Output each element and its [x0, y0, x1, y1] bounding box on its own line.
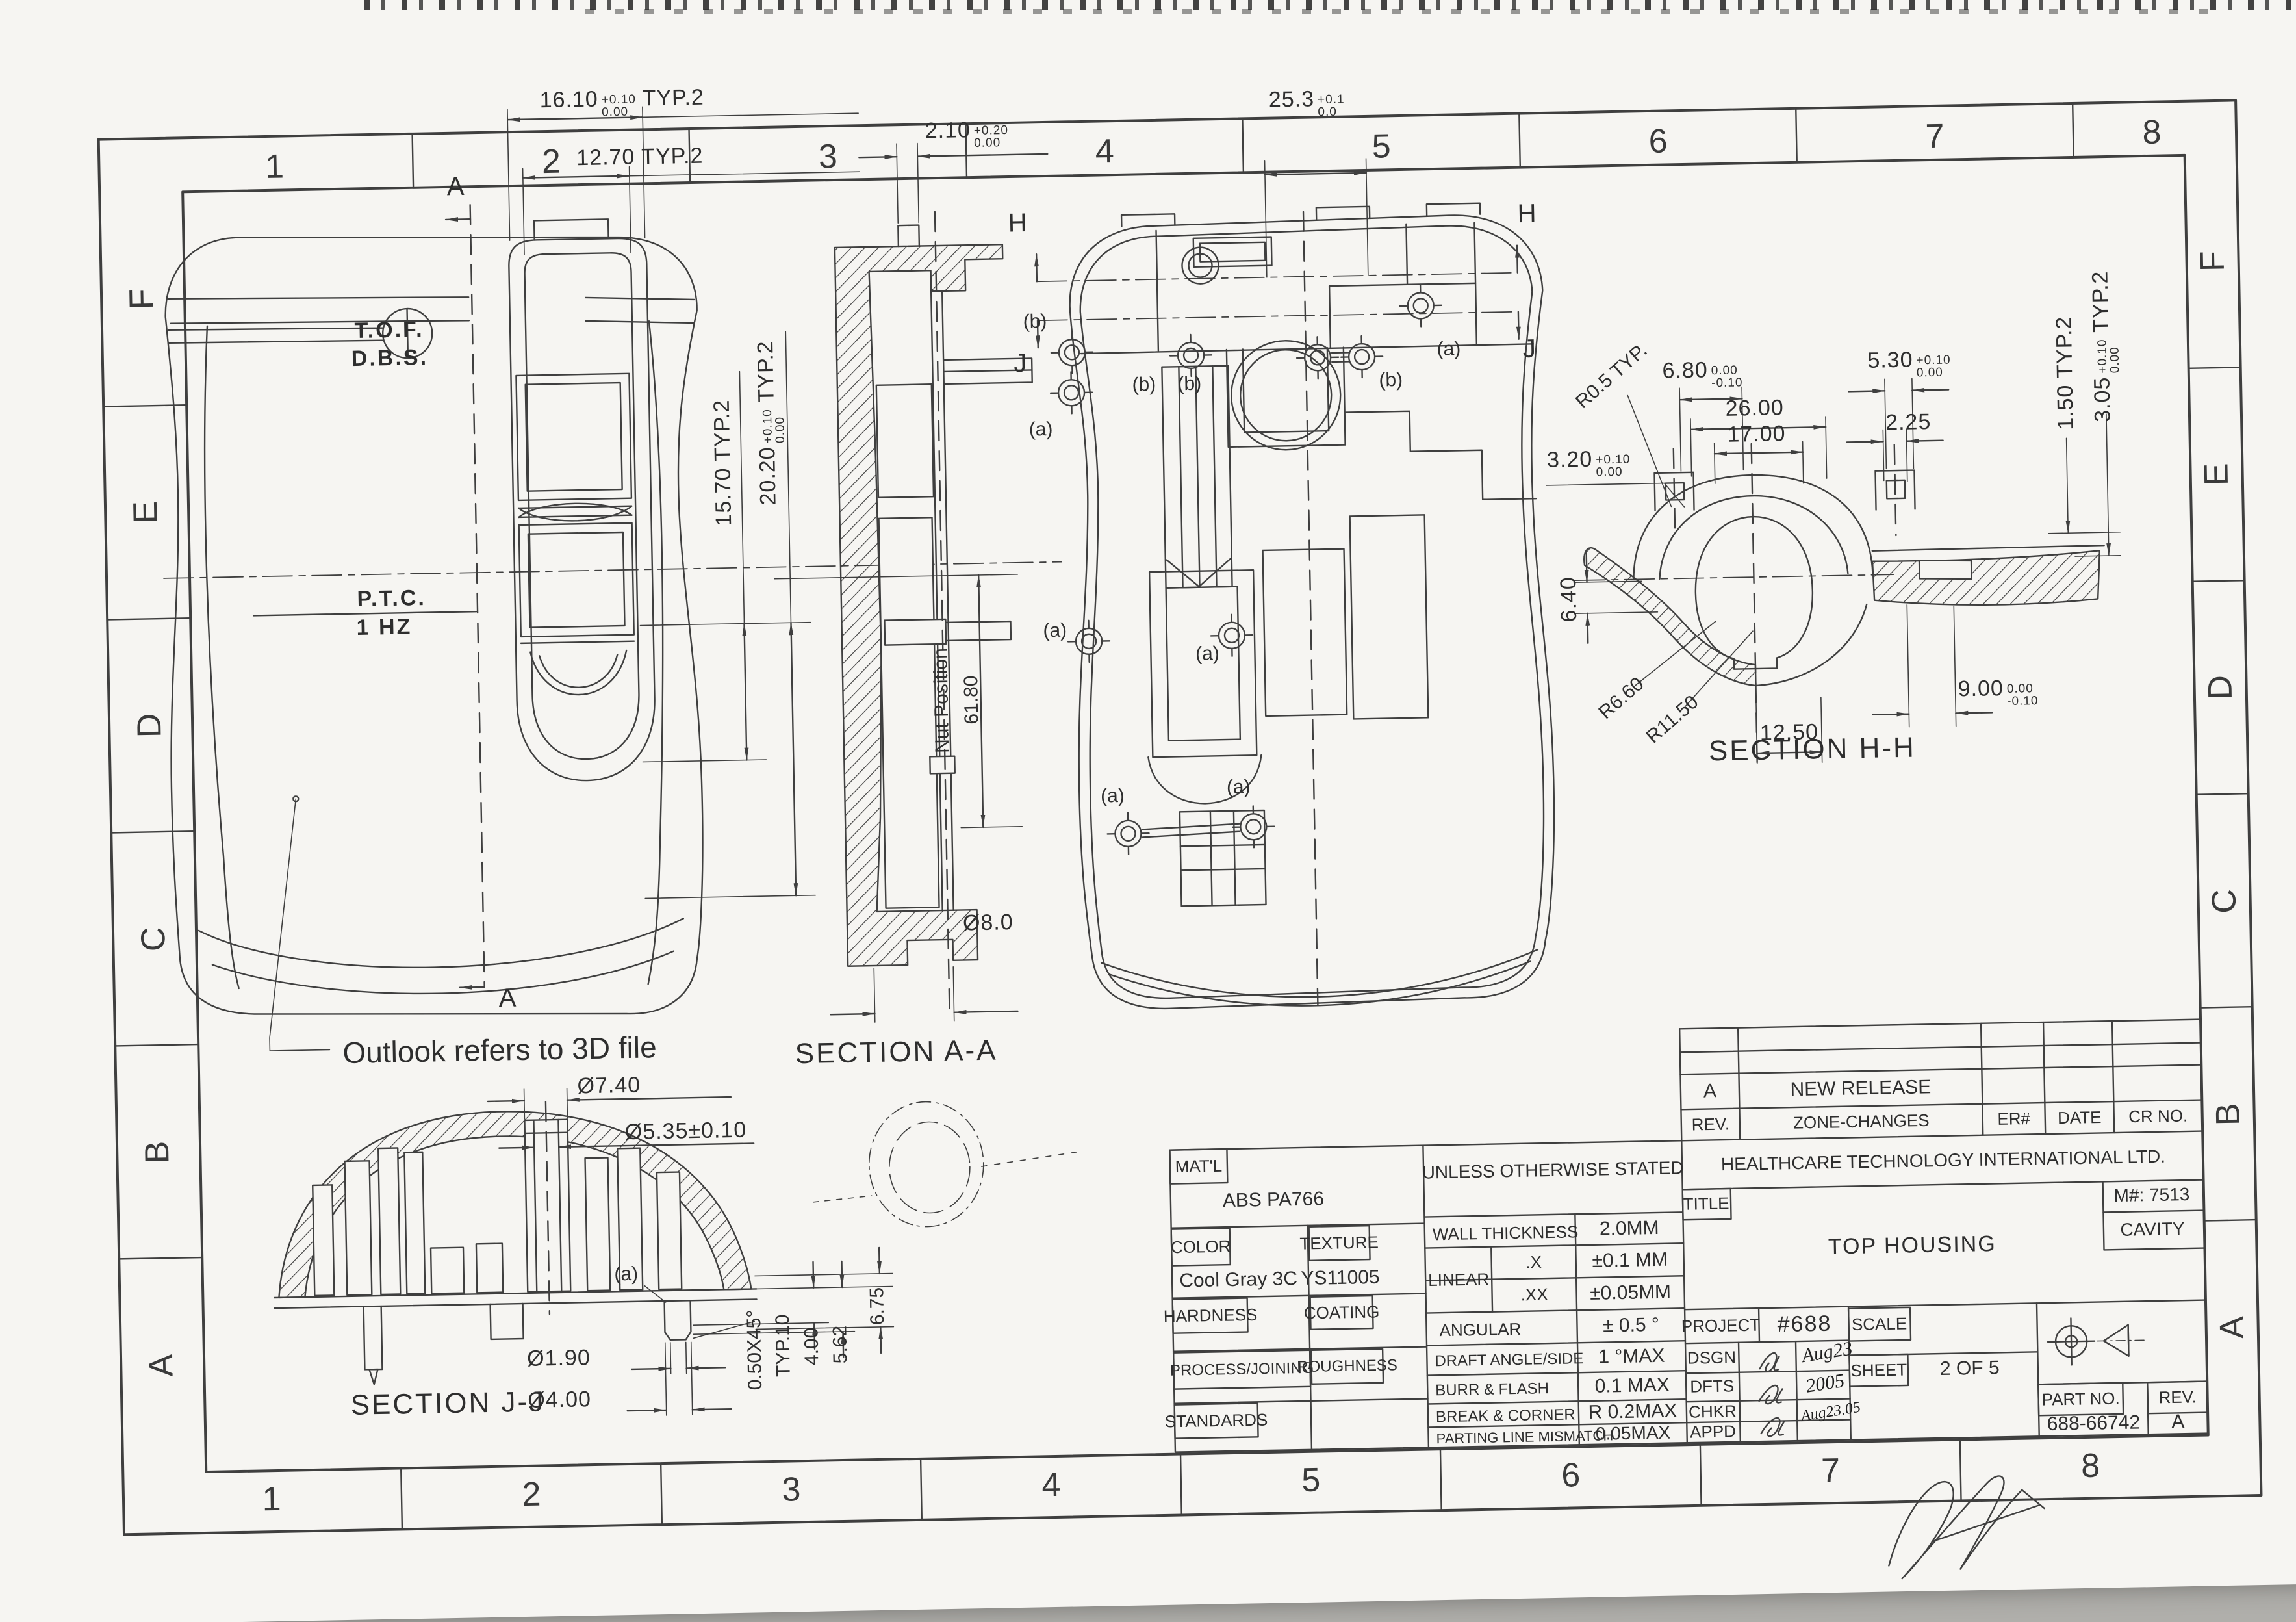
rev-col-cr: CR NO. [2128, 1106, 2188, 1127]
dim-6-80: 6.800.00-0.10 [1662, 357, 1742, 390]
section-a-arrow-bottom: A [498, 984, 517, 1013]
label-dbs: D.B.S. [351, 345, 429, 372]
break-value: R 0.2MAX [1588, 1400, 1677, 1423]
section-h-mark-left: H [1008, 209, 1027, 238]
projection-symbol-icon [2047, 1317, 2144, 1365]
row-right-f: F [2193, 251, 2232, 272]
back-view-linework [1035, 155, 1558, 1011]
dim-dia-7-40: Ø7.40 [577, 1073, 641, 1100]
dim-2-25: 2.25 [1885, 409, 1932, 435]
nut-position-label: Nut Position [930, 648, 954, 753]
row-right-d: D [2200, 675, 2240, 701]
dim-4-00: 4.00 [800, 1327, 823, 1365]
dim-chamfer-1: 0.50X45° [743, 1309, 767, 1390]
zone-top-2: 2 [541, 142, 561, 182]
dim-15-70: 15.70 TYP.2 [709, 399, 737, 526]
zone-top-3: 3 [818, 137, 837, 177]
section-jj-title: SECTION J-J [350, 1385, 545, 1421]
roughness-label: ROUGHNESS [1297, 1356, 1397, 1376]
hardness-label: HARDNESS [1164, 1305, 1258, 1327]
zone-bottom-6: 6 [1561, 1456, 1581, 1495]
zone-bottom-8: 8 [2081, 1447, 2100, 1486]
revision-table-lines [1679, 1020, 2202, 1141]
scan-noise-strip-2 [585, 9, 2209, 14]
marker-a-jj: (a) [614, 1263, 638, 1286]
marker-a-5: (a) [1101, 785, 1125, 808]
dsgn-label: DSGN [1687, 1347, 1737, 1368]
row-left-d: D [130, 713, 170, 738]
rev-row-letter: A [1703, 1080, 1717, 1102]
color-value: Cool Gray 3C [1179, 1268, 1297, 1292]
row-left-f: F [122, 289, 162, 310]
cavity-label: CAVITY [2120, 1218, 2185, 1241]
zone-bottom-7: 7 [1821, 1451, 1841, 1491]
zone-top-1: 1 [264, 147, 284, 187]
linear-label: LINEAR [1428, 1269, 1489, 1291]
linear-x-label: .X [1525, 1252, 1542, 1272]
zone-bottom-4: 4 [1041, 1465, 1061, 1505]
zone-bottom-3: 3 [782, 1470, 801, 1510]
title-value: TOP HOUSING [1828, 1231, 1996, 1260]
section-jj-linework [271, 1083, 895, 1422]
zone-bottom-5: 5 [1301, 1461, 1321, 1500]
title-label: TITLE [1683, 1193, 1729, 1214]
zone-bottom-2: 2 [522, 1475, 541, 1515]
appd-label: APPD [1690, 1421, 1736, 1442]
project-label: PROJECT [1681, 1315, 1761, 1337]
marker-a-3: (a) [1043, 619, 1067, 642]
section-hh-linework [1544, 375, 2124, 767]
dim-chamfer-2: TYP.10 [772, 1314, 795, 1377]
linear-x-value: ±0.1 MM [1592, 1249, 1668, 1272]
parting-label: PARTING LINE MISMATCH [1436, 1427, 1613, 1447]
texture-label: TEXTURE [1299, 1232, 1379, 1254]
dim-12-70: 12.70 TYP.2 [576, 144, 704, 172]
section-j-mark-left: J [1014, 349, 1027, 378]
angular-label: ANGULAR [1439, 1319, 1521, 1341]
wall-value: 2.0MM [1600, 1217, 1659, 1241]
row-left-c: C [134, 927, 173, 952]
dim-dia-5-35: Ø5.35±0.10 [624, 1118, 746, 1145]
dim-5-30: 5.30+0.100.00 [1867, 346, 1951, 380]
chkr-label: CHKR [1689, 1401, 1737, 1422]
linear-xx-value: ±0.05MM [1590, 1281, 1671, 1305]
matl-label: MAT'L [1175, 1156, 1222, 1177]
marker-a-2: (a) [1436, 338, 1461, 361]
sheet-label: SHEET [1850, 1359, 1907, 1381]
dim-9-00: 9.000.00-0.10 [1958, 675, 2038, 708]
part-no-value: 688-66742 [2047, 1411, 2140, 1435]
marker-a-1: (a) [1028, 418, 1052, 441]
zone-top-8: 8 [2142, 112, 2162, 152]
texture-value: YS11005 [1301, 1267, 1380, 1290]
rev-col-date: DATE [2058, 1107, 2102, 1128]
dim-6-75: 6.75 [866, 1287, 889, 1325]
break-label: BREAK & CORNER [1436, 1406, 1575, 1426]
color-label: COLOR [1171, 1237, 1231, 1258]
parting-value: 0.05MAX [1596, 1422, 1671, 1445]
signature-scribble [1887, 1475, 2046, 1578]
marker-b-4: (b) [1379, 369, 1403, 392]
wall-label: WALL THICKNESS [1433, 1222, 1579, 1244]
dim-17-00: 17.00 [1727, 421, 1786, 448]
rev-label: REV. [2158, 1387, 2197, 1408]
dim-1-50: 1.50 TYP.2 [2052, 316, 2079, 430]
label-1hz: 1 HZ [356, 614, 412, 641]
marker-a-4: (a) [1195, 643, 1219, 665]
paper-sheet: 1 2 3 4 5 6 7 8 1 2 3 4 5 6 7 8 F E D C … [0, 0, 2296, 1622]
scan-smudge [811, 1099, 1080, 1228]
row-right-e: E [2197, 463, 2236, 486]
section-h-mark-right: H [1517, 200, 1537, 229]
angular-value: ± 0.5 ° [1603, 1314, 1659, 1337]
dim-25-3: 25.3+0.10.0 [1269, 86, 1346, 120]
dim-dia-1-90: Ø1.90 [527, 1345, 591, 1372]
m-number: M#: 7513 [2113, 1184, 2189, 1206]
rev-col-rev: REV. [1691, 1114, 1729, 1135]
section-aa-title: SECTION A-A [795, 1035, 998, 1071]
approval-signatures-scribble [1740, 1342, 1859, 1448]
dim-20-20: 20.20+0.100.00 TYP.2 [753, 341, 788, 506]
draft-label: DRAFT ANGLE/SIDE [1435, 1350, 1583, 1371]
scale-label: SCALE [1852, 1313, 1907, 1335]
burr-label: BURR & FLASH [1435, 1380, 1549, 1400]
dim-5-62: 5.62 [829, 1326, 852, 1364]
section-j-mark-right: J [1523, 335, 1537, 364]
marker-a-6: (a) [1227, 776, 1251, 799]
dim-61-80: 61.80 [960, 675, 983, 725]
sheet-value: 2 OF 5 [1940, 1357, 2000, 1380]
standards-label: STANDARDS [1165, 1410, 1268, 1432]
section-a-arrow-top: A [446, 172, 465, 201]
drawing-canvas: 1 2 3 4 5 6 7 8 1 2 3 4 5 6 7 8 F E D C … [0, 0, 2296, 1622]
coating-label: COATING [1304, 1302, 1380, 1323]
row-right-a: A [2212, 1316, 2252, 1339]
row-left-e: E [126, 501, 166, 524]
matl-value: ABS PA766 [1222, 1188, 1324, 1212]
dim-26-00: 26.00 [1725, 395, 1784, 422]
row-right-b: B [2208, 1103, 2248, 1126]
project-value: #688 [1777, 1311, 1831, 1338]
dim-6-40: 6.40 [1556, 576, 1582, 623]
dim-2-10: 2.10+0.200.00 [925, 117, 1008, 150]
part-no-label: PART NO. [2041, 1388, 2119, 1410]
marker-b-1: (b) [1023, 311, 1047, 333]
dim-3-05: 3.05+0.100.00 TYP.2 [2087, 270, 2122, 422]
label-tof: T.O.F. [354, 317, 424, 344]
dfts-label: DFTS [1690, 1376, 1734, 1397]
row-right-c: C [2204, 889, 2244, 914]
burr-value: 0.1 MAX [1594, 1374, 1670, 1398]
zone-top-7: 7 [1925, 117, 1945, 157]
marker-b-2: (b) [1132, 374, 1156, 396]
linear-xx-label: .XX [1520, 1285, 1548, 1306]
rev-col-er: ER# [1997, 1109, 2030, 1129]
row-left-a: A [142, 1354, 181, 1377]
rev-col-zone: ZONE-CHANGES [1793, 1111, 1930, 1133]
zone-bottom-1: 1 [262, 1480, 281, 1519]
zone-top-6: 6 [1648, 122, 1668, 161]
rev-value: A [2171, 1411, 2185, 1433]
dim-16-10: 16.10+0.100.00 TYP.2 [539, 85, 704, 120]
draft-value: 1 °MAX [1598, 1345, 1665, 1369]
rev-row-change: NEW RELEASE [1790, 1076, 1931, 1101]
dim-3-20: 3.20+0.100.00 [1547, 446, 1631, 480]
marker-b-3: (b) [1177, 373, 1201, 396]
scan-noise-strip [364, 0, 2296, 10]
row-left-b: B [138, 1140, 177, 1164]
dim-dia-8: Ø8.0 [963, 910, 1014, 936]
label-ptc: P.T.C. [357, 586, 426, 612]
section-hh-title: SECTION H-H [1708, 732, 1916, 768]
zone-top-5: 5 [1371, 127, 1391, 166]
outlook-note: Outlook refers to 3D file [342, 1029, 657, 1070]
process-label: PROCESS/JOINING [1170, 1359, 1314, 1380]
scanned-engineering-drawing: 1 2 3 4 5 6 7 8 1 2 3 4 5 6 7 8 F E D C … [0, 0, 2296, 1622]
zone-top-4: 4 [1095, 132, 1114, 172]
